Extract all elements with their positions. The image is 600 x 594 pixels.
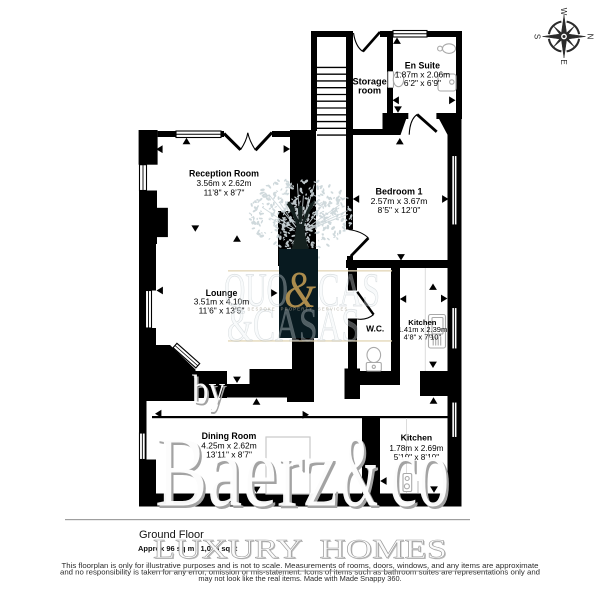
svg-text:11’8" x 8’7": 11’8" x 8’7" (204, 188, 245, 198)
svg-text:W: W (559, 8, 568, 16)
svg-text:Baerz: Baerz (155, 415, 338, 529)
svg-text:co: co (389, 415, 449, 529)
svg-text:E: E (559, 59, 568, 64)
svg-text:8’5" x 12’0": 8’5" x 12’0" (378, 205, 421, 215)
svg-text:W.C.: W.C. (366, 324, 384, 334)
svg-text:S: S (533, 34, 542, 39)
svg-text:N: N (586, 34, 595, 40)
svg-text:&: & (341, 415, 378, 529)
svg-text:LUXURY HOMES: LUXURY HOMES (153, 534, 447, 564)
svg-text:by: by (192, 366, 225, 412)
svg-text:room: room (358, 86, 381, 96)
svg-text:3.56m x 2.62m: 3.56m x 2.62m (197, 178, 252, 188)
svg-text:may not look like the real ite: may not look like the real items. Made w… (198, 574, 401, 583)
svg-text:4’8" x 7’10": 4’8" x 7’10" (404, 333, 442, 342)
svg-text:BESPOKE PROPERTY SERVICES: BESPOKE PROPERTY SERVICES (247, 307, 348, 312)
svg-text:Reception Room: Reception Room (189, 169, 259, 179)
svg-text:6’2" x 6’9": 6’2" x 6’9" (404, 78, 441, 88)
